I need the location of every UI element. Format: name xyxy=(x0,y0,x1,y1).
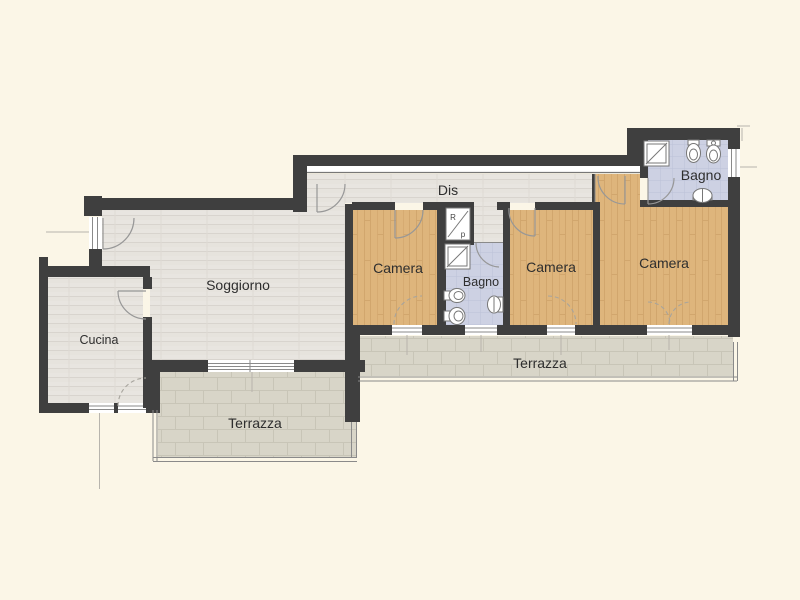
floorplan-drawing: R p xyxy=(0,0,800,600)
ripostiglio-label-bottom: p xyxy=(461,230,466,239)
sink-icon xyxy=(693,189,712,203)
label-camera-2: Camera xyxy=(526,259,576,275)
entrance-opening xyxy=(89,217,102,249)
toilet-icon xyxy=(707,140,721,163)
label-camera-1: Camera xyxy=(373,260,423,276)
ripostiglio-label-top: R xyxy=(450,213,456,222)
label-bagno-2: Bagno xyxy=(681,167,722,183)
label-soggiorno: Soggiorno xyxy=(206,277,270,293)
bagno2-window xyxy=(728,149,740,177)
bidet-icon xyxy=(687,140,701,163)
wall-cavity-strips xyxy=(293,165,640,173)
floorplan-canvas: R p xyxy=(0,0,800,600)
label-cucina: Cucina xyxy=(80,333,119,347)
bidet-icon xyxy=(444,289,465,303)
bagno1-window xyxy=(465,325,497,335)
shower-icon xyxy=(644,141,669,166)
cucina-window xyxy=(88,403,114,413)
camera1-terrace-door xyxy=(392,325,422,335)
sink-icon xyxy=(488,296,504,313)
camera2-terrace-door xyxy=(547,325,575,335)
label-bagno-1: Bagno xyxy=(463,275,499,289)
label-terrazza-left: Terrazza xyxy=(228,415,282,431)
label-terrazza-right: Terrazza xyxy=(513,355,567,371)
label-dis: Dis xyxy=(438,182,458,198)
cucina-terrace-door xyxy=(118,403,146,413)
shower-icon xyxy=(445,244,470,269)
label-camera-3: Camera xyxy=(639,255,689,271)
ripostiglio-closet: R p xyxy=(446,208,470,240)
camera3-terrace-door xyxy=(647,325,692,335)
